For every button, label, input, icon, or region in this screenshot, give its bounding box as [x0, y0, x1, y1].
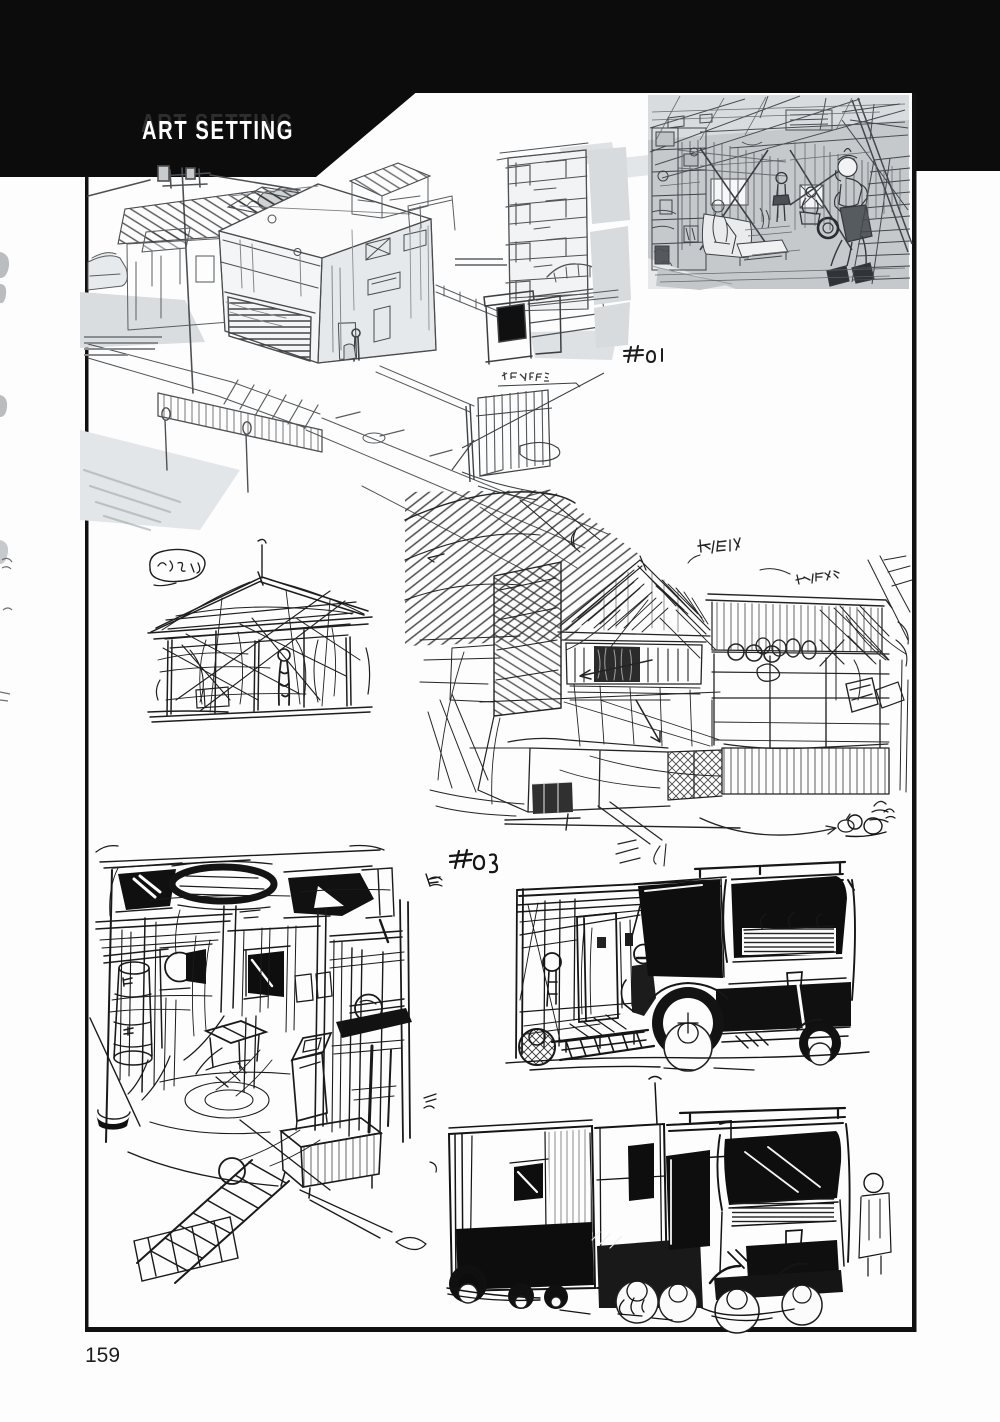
- svg-text:ART SETTING: ART SETTING: [142, 117, 294, 145]
- svg-text:159: 159: [85, 1344, 120, 1367]
